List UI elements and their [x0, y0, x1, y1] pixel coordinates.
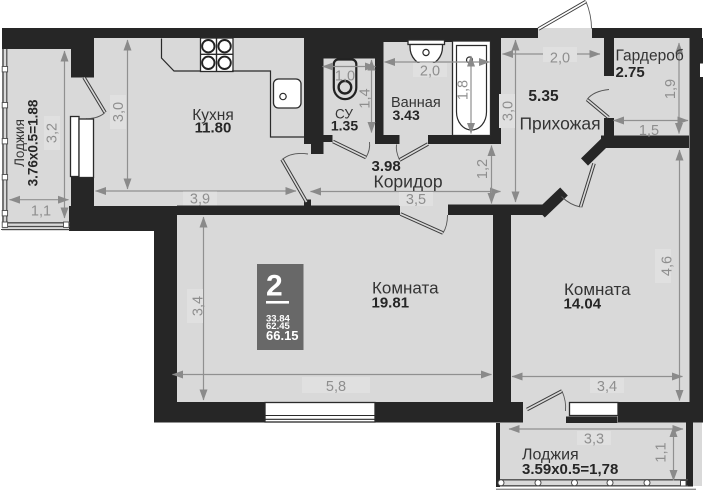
svg-text:2,0: 2,0: [550, 51, 570, 67]
svg-text:1.35: 1.35: [331, 118, 358, 134]
svg-text:2.75: 2.75: [616, 64, 645, 81]
svg-text:3.76х0.5=1.88: 3.76х0.5=1.88: [26, 99, 41, 186]
svg-text:14.04: 14.04: [564, 296, 602, 313]
svg-text:Гардероб: Гардероб: [616, 48, 684, 65]
svg-text:1,2: 1,2: [475, 159, 491, 179]
svg-text:3,3: 3,3: [584, 432, 604, 448]
svg-text:3.43: 3.43: [393, 107, 420, 123]
svg-text:Прихожая: Прихожая: [519, 114, 600, 134]
svg-text:1,1: 1,1: [31, 204, 51, 220]
svg-text:19.81: 19.81: [372, 295, 410, 312]
svg-text:11.80: 11.80: [195, 120, 232, 137]
svg-text:1,5: 1,5: [639, 123, 659, 139]
svg-text:4,6: 4,6: [660, 256, 676, 276]
svg-text:Коридор: Коридор: [374, 172, 443, 192]
svg-text:1,1: 1,1: [654, 442, 670, 462]
svg-text:3,4: 3,4: [191, 296, 207, 316]
svg-text:1,0: 1,0: [335, 69, 355, 85]
svg-text:1,9: 1,9: [663, 79, 679, 99]
svg-text:1,4: 1,4: [358, 88, 374, 108]
svg-text:2,0: 2,0: [420, 64, 440, 80]
svg-text:3,2: 3,2: [45, 123, 61, 143]
svg-text:3.59х0.5=1,78: 3.59х0.5=1,78: [522, 461, 618, 478]
svg-text:3,0: 3,0: [501, 101, 517, 121]
svg-text:1,8: 1,8: [456, 80, 472, 100]
svg-text:3,5: 3,5: [406, 192, 426, 208]
svg-text:3,4: 3,4: [597, 379, 617, 395]
svg-text:5,8: 5,8: [326, 379, 346, 395]
svg-text:2: 2: [266, 270, 283, 303]
svg-text:3,0: 3,0: [111, 102, 127, 122]
svg-text:66.15: 66.15: [266, 328, 299, 343]
svg-text:3,9: 3,9: [190, 192, 210, 208]
svg-text:5.35: 5.35: [528, 88, 559, 105]
